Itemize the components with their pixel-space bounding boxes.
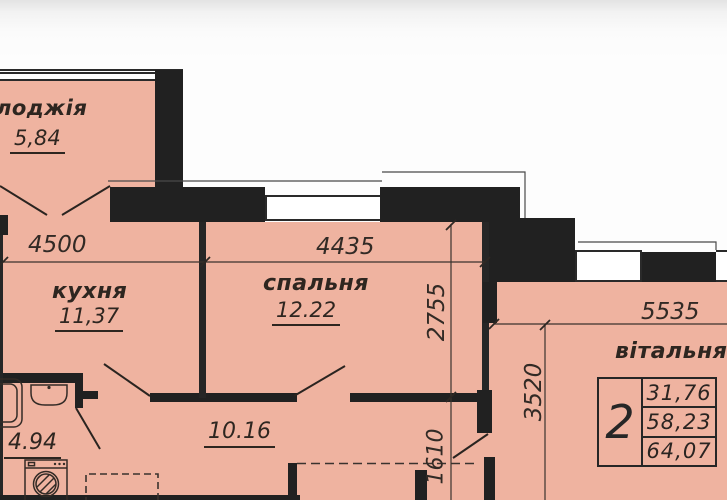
living-label: вітальня xyxy=(615,341,715,363)
sink-icon xyxy=(31,385,67,405)
dim-bedroom-width: 4435 xyxy=(316,234,375,260)
bedroom-area: 12.22 xyxy=(272,300,340,326)
bathtub-icon xyxy=(0,379,22,427)
dim-living-depth: 3520 xyxy=(521,352,547,432)
loggia-area: 5,84 xyxy=(10,128,65,154)
loggia-label: лоджія xyxy=(0,98,72,119)
kitchen-label: кухня xyxy=(52,281,122,303)
kitchen-area: 11,37 xyxy=(55,306,123,332)
hallway-area: 10.16 xyxy=(204,421,275,448)
dim-hall-depth: 1610 xyxy=(424,417,449,497)
sill-lines xyxy=(108,172,716,250)
dim-kitchen-width: 4500 xyxy=(28,232,87,258)
dashed-lines xyxy=(86,464,477,500)
rooms-count: 2 xyxy=(599,379,643,465)
bedroom-label: спальня xyxy=(263,273,355,295)
living-area-value: 31,76 xyxy=(643,379,715,408)
dim-living-width: 5535 xyxy=(641,299,700,325)
dwelling-area-value: 58,23 xyxy=(643,408,715,437)
bathroom-area: 4.94 xyxy=(4,432,61,459)
washing-machine-icon xyxy=(25,459,67,500)
floor-plan: лоджія 5,84 кухня 11,37 спальня 12.22 ві… xyxy=(0,0,727,500)
summary-table: 2 31,76 58,23 64,07 xyxy=(597,377,717,467)
total-area-value: 64,07 xyxy=(643,438,715,465)
dim-bedroom-depth: 2755 xyxy=(424,272,450,352)
